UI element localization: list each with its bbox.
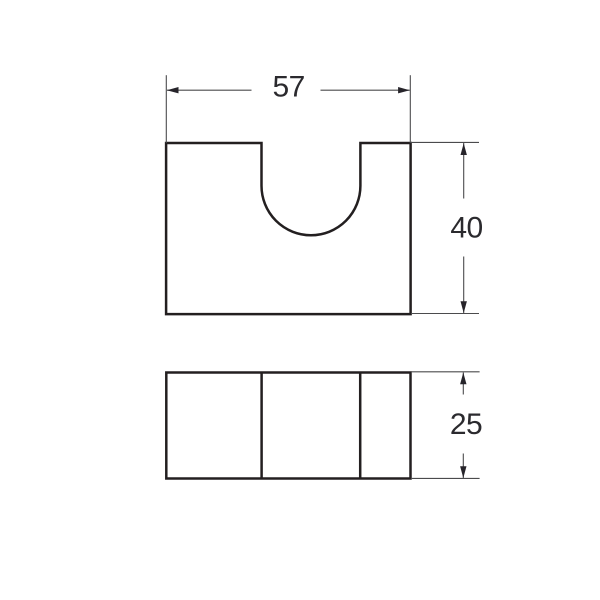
svg-text:57: 57 bbox=[273, 71, 305, 104]
svg-text:25: 25 bbox=[450, 408, 482, 441]
svg-text:40: 40 bbox=[450, 211, 482, 244]
